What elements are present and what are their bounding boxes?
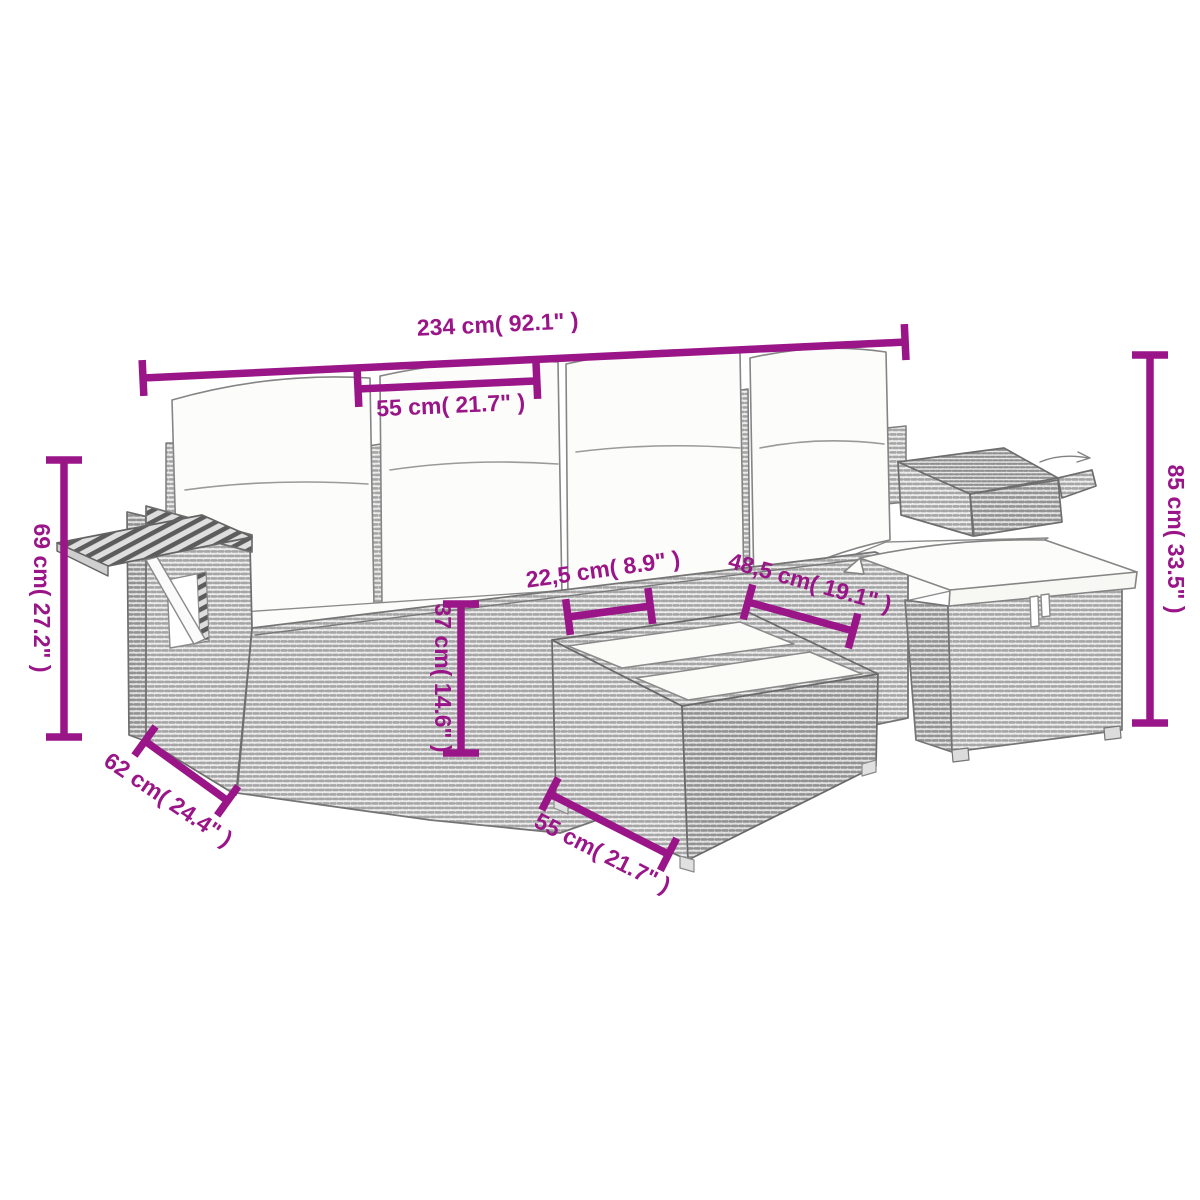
ottoman-left-face	[905, 600, 952, 752]
twig-decoration	[1040, 452, 1090, 462]
dim-armrest-height-label: 69 cm( 27.2" )	[29, 524, 55, 673]
ottoman-foot	[1104, 726, 1121, 740]
ottoman	[905, 584, 1122, 762]
dim-overall-width-label: 234 cm( 92.1" )	[416, 307, 579, 341]
right-armrest-end-cap	[1058, 470, 1096, 498]
ottoman-foot	[952, 748, 969, 762]
center-table	[552, 612, 878, 872]
dim-total-height-label: 85 cm( 33.5" )	[1163, 465, 1189, 614]
dim-seat-height-label: 37 cm( 14.6" )	[430, 604, 456, 753]
dim-total-height-line	[1132, 355, 1168, 723]
dimension-diagram: 234 cm( 92.1" ) 55 cm( 21.7" ) 69 cm( 27…	[0, 0, 1200, 1200]
right-armrest	[898, 448, 1096, 536]
diagram-canvas: 234 cm( 92.1" ) 55 cm( 21.7" ) 69 cm( 27…	[0, 0, 1200, 1200]
dim-total-height	[1132, 355, 1168, 723]
